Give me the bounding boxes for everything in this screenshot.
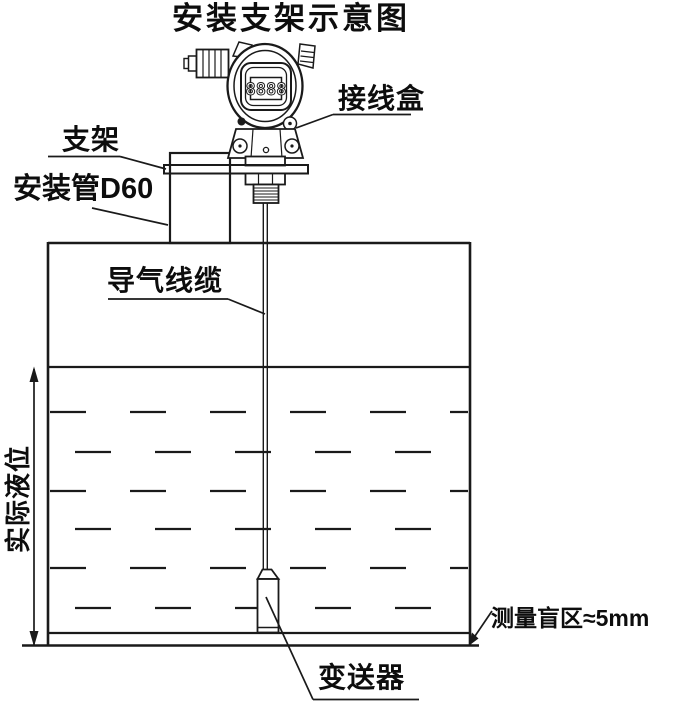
label-air-cable: 导气线缆	[107, 266, 223, 297]
lcd-value: 8888	[246, 80, 287, 100]
label-actual-level: 实际液位	[4, 429, 34, 569]
label-mounting-pipe: 安装管D60	[13, 174, 153, 206]
label-bracket: 支架	[62, 125, 120, 156]
leader-junction-box	[296, 115, 411, 129]
conduit-tab-icon	[298, 44, 315, 68]
mounting-pipe-drawing	[170, 153, 230, 243]
bracket-plate-drawing	[164, 165, 308, 174]
hex-nut-and-thread	[246, 174, 286, 204]
air-cable-drawing	[263, 203, 267, 570]
leader-bracket	[48, 157, 166, 170]
tank-outline	[22, 242, 479, 646]
head-yoke	[228, 129, 303, 158]
label-blind-zone: 测量盲区≈5mm	[491, 606, 649, 631]
leader-air-cable	[108, 299, 265, 314]
lcd-display: 8888	[241, 63, 291, 110]
page-title: 安装支架示意图	[145, 2, 437, 36]
transmitter-head-drawing: 8888	[184, 42, 315, 166]
label-junction-box: 接线盒	[338, 84, 425, 115]
installation-diagram: 8888	[0, 0, 700, 708]
cable-gland-icon	[184, 50, 229, 78]
leader-mounting-pipe	[92, 208, 168, 225]
label-transmitter: 变送器	[318, 663, 405, 694]
blind-zone-arrow	[469, 611, 493, 646]
